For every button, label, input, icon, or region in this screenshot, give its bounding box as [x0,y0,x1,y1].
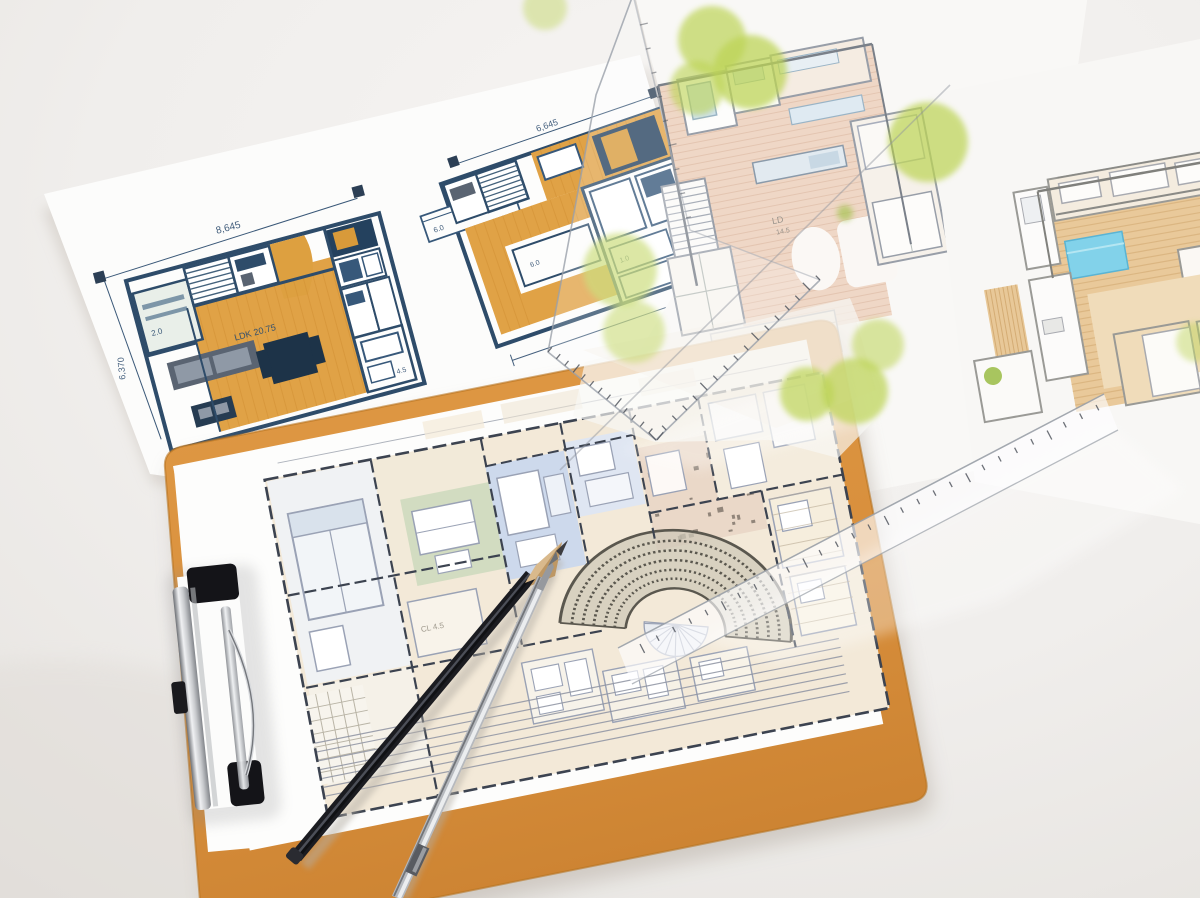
svg-text:6,370: 6,370 [116,357,128,380]
